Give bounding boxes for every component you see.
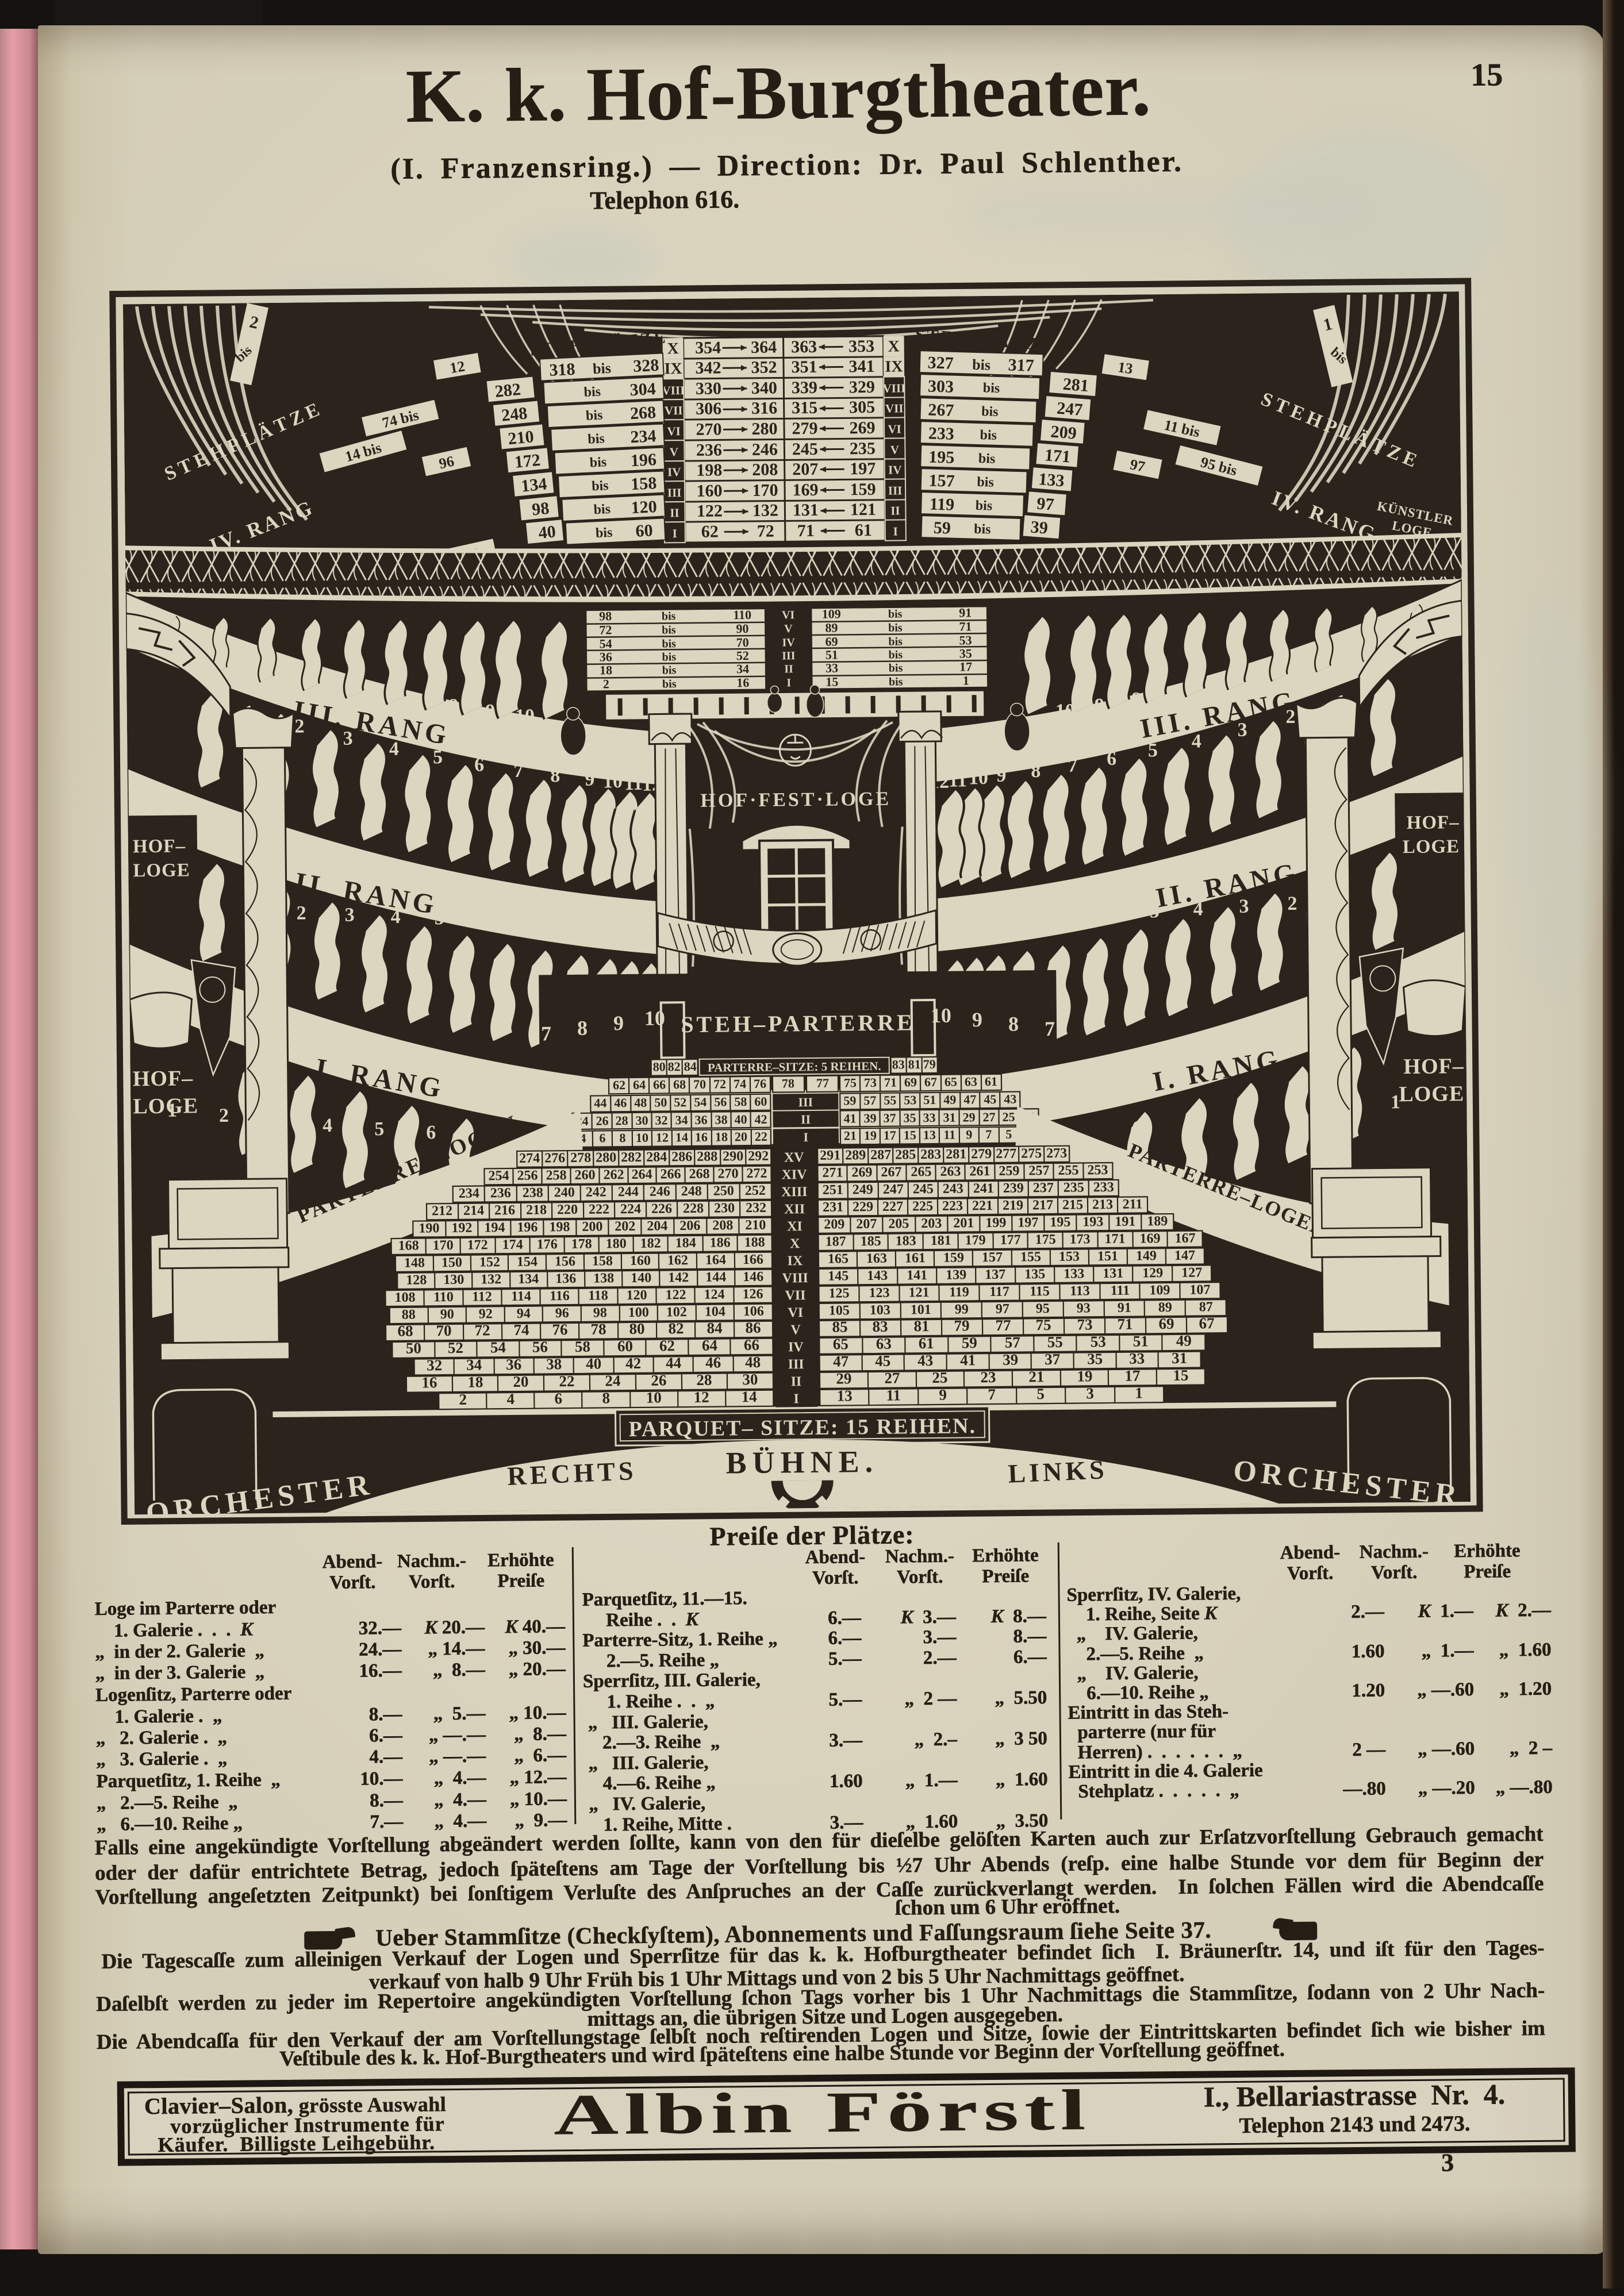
svg-text:341: 341 <box>849 357 874 376</box>
svg-text:67: 67 <box>924 1075 937 1089</box>
svg-text:160: 160 <box>630 1253 651 1268</box>
svg-text:205: 205 <box>888 1216 909 1231</box>
svg-text:IV: IV <box>667 465 681 479</box>
svg-text:13: 13 <box>923 1128 936 1142</box>
svg-text:109: 109 <box>1149 1283 1170 1298</box>
svg-text:19: 19 <box>1077 1367 1092 1384</box>
svg-text:255: 255 <box>1058 1163 1078 1178</box>
svg-text:280: 280 <box>751 420 777 439</box>
svg-text:150: 150 <box>441 1255 462 1270</box>
svg-text:142: 142 <box>668 1270 689 1285</box>
svg-text:25: 25 <box>932 1369 947 1386</box>
svg-text:330: 330 <box>696 379 721 398</box>
svg-text:173: 173 <box>1069 1232 1090 1247</box>
svg-text:9: 9 <box>966 1127 972 1141</box>
svg-text:192: 192 <box>451 1221 472 1236</box>
svg-text:17: 17 <box>959 659 972 674</box>
svg-text:6: 6 <box>370 682 380 703</box>
svg-text:231: 231 <box>823 1199 843 1214</box>
svg-text:80: 80 <box>629 1320 644 1337</box>
svg-text:196: 196 <box>630 450 657 470</box>
svg-text:6: 6 <box>1107 748 1116 770</box>
svg-text:351: 351 <box>791 357 817 376</box>
svg-text:235: 235 <box>1064 1180 1084 1195</box>
svg-text:100: 100 <box>628 1305 649 1320</box>
svg-text:52: 52 <box>736 648 749 663</box>
svg-text:20: 20 <box>513 1373 528 1390</box>
svg-text:210: 210 <box>507 427 535 448</box>
svg-text:3: 3 <box>343 728 353 749</box>
svg-text:86: 86 <box>745 1319 761 1336</box>
svg-text:283: 283 <box>920 1147 941 1162</box>
svg-text:HOF–: HOF– <box>1407 812 1460 833</box>
svg-text:120: 120 <box>631 497 658 517</box>
svg-text:162: 162 <box>667 1253 688 1268</box>
svg-text:9: 9 <box>998 906 1008 928</box>
svg-text:136: 136 <box>555 1271 576 1286</box>
svg-text:33: 33 <box>923 1110 935 1125</box>
svg-text:98: 98 <box>593 1305 607 1320</box>
svg-text:bis: bis <box>595 525 613 541</box>
svg-text:bis: bis <box>975 498 992 514</box>
svg-text:246: 246 <box>650 1184 670 1199</box>
svg-text:II: II <box>801 1112 811 1126</box>
svg-text:4: 4 <box>1235 1109 1245 1130</box>
svg-text:248: 248 <box>501 403 528 425</box>
svg-text:PARTERRE–SITZE: 5 REIHEN.: PARTERRE–SITZE: 5 REIHEN. <box>708 1059 881 1075</box>
svg-text:9: 9 <box>939 1386 947 1403</box>
svg-text:122: 122 <box>697 501 723 520</box>
svg-text:268: 268 <box>689 1167 709 1182</box>
svg-text:276: 276 <box>544 1151 565 1166</box>
svg-text:304: 304 <box>629 379 656 399</box>
svg-text:VI: VI <box>667 424 681 438</box>
svg-text:66: 66 <box>653 1077 666 1091</box>
svg-text:76: 76 <box>754 1076 766 1091</box>
svg-text:133: 133 <box>1064 1266 1084 1281</box>
svg-text:9: 9 <box>585 769 594 790</box>
svg-text:bis: bis <box>662 678 677 690</box>
svg-text:198: 198 <box>549 1220 570 1234</box>
svg-text:6: 6 <box>554 1390 562 1407</box>
svg-text:69: 69 <box>825 634 838 649</box>
svg-text:11: 11 <box>624 773 643 794</box>
svg-text:89: 89 <box>1158 1300 1172 1315</box>
svg-text:200: 200 <box>582 1219 602 1234</box>
svg-text:225: 225 <box>912 1199 933 1214</box>
svg-text:242: 242 <box>586 1184 606 1199</box>
svg-text:172: 172 <box>514 451 542 472</box>
svg-text:318: 318 <box>549 360 576 380</box>
svg-text:4: 4 <box>391 906 401 928</box>
svg-text:305: 305 <box>849 398 875 417</box>
svg-text:III: III <box>888 483 903 497</box>
svg-text:103: 103 <box>870 1303 890 1318</box>
svg-text:115: 115 <box>1030 1284 1050 1299</box>
svg-text:21: 21 <box>844 1128 857 1143</box>
svg-text:10: 10 <box>646 1389 662 1406</box>
svg-text:bis: bis <box>982 380 1000 396</box>
svg-text:8: 8 <box>602 1389 610 1406</box>
svg-text:152: 152 <box>479 1255 500 1270</box>
svg-text:316: 316 <box>751 399 777 418</box>
svg-text:137: 137 <box>985 1267 1005 1282</box>
svg-text:110: 110 <box>733 607 751 622</box>
svg-text:20: 20 <box>735 1129 747 1144</box>
svg-text:253: 253 <box>1087 1163 1108 1178</box>
svg-text:113: 113 <box>1070 1283 1090 1298</box>
svg-text:10: 10 <box>644 1006 665 1029</box>
svg-text:3: 3 <box>239 652 248 673</box>
svg-text:106: 106 <box>743 1304 764 1319</box>
svg-text:15: 15 <box>904 1128 916 1142</box>
svg-text:243: 243 <box>943 1181 963 1196</box>
svg-text:3: 3 <box>344 905 354 926</box>
svg-text:5: 5 <box>1036 1385 1045 1402</box>
svg-text:175: 175 <box>1035 1232 1055 1247</box>
svg-text:210: 210 <box>745 1218 766 1233</box>
svg-text:274: 274 <box>519 1151 540 1166</box>
svg-text:50: 50 <box>654 1095 667 1109</box>
svg-text:17: 17 <box>884 1128 896 1143</box>
svg-text:171: 171 <box>1044 445 1071 466</box>
svg-text:208: 208 <box>752 460 778 479</box>
svg-text:177: 177 <box>1000 1233 1021 1248</box>
svg-text:70: 70 <box>693 1077 706 1091</box>
svg-text:V: V <box>784 622 793 635</box>
svg-text:79: 79 <box>923 1057 936 1071</box>
svg-text:282: 282 <box>494 380 521 401</box>
svg-text:214: 214 <box>463 1203 484 1218</box>
svg-text:bis: bis <box>662 664 677 676</box>
svg-text:34: 34 <box>466 1356 482 1374</box>
svg-text:43: 43 <box>917 1352 933 1369</box>
svg-text:83: 83 <box>892 1057 905 1071</box>
svg-text:XI: XI <box>787 1219 803 1234</box>
svg-text:101: 101 <box>911 1302 931 1317</box>
svg-text:206: 206 <box>679 1218 700 1233</box>
svg-text:58: 58 <box>734 1094 747 1109</box>
svg-text:216: 216 <box>494 1203 515 1218</box>
svg-text:262: 262 <box>603 1167 624 1182</box>
svg-text:285: 285 <box>895 1147 916 1162</box>
svg-text:97: 97 <box>1036 494 1054 514</box>
svg-text:110: 110 <box>433 1290 454 1305</box>
svg-text:III: III <box>782 649 796 662</box>
svg-text:117: 117 <box>989 1284 1009 1299</box>
svg-text:105: 105 <box>829 1303 850 1318</box>
svg-text:bis: bis <box>589 455 607 470</box>
svg-text:VI: VI <box>788 1305 803 1320</box>
svg-text:44: 44 <box>666 1354 681 1371</box>
svg-text:X: X <box>888 337 900 355</box>
svg-text:227: 227 <box>882 1199 903 1214</box>
svg-text:63: 63 <box>965 1074 977 1089</box>
svg-text:38: 38 <box>715 1112 727 1126</box>
svg-text:8: 8 <box>552 910 562 931</box>
svg-text:VI: VI <box>888 422 901 436</box>
svg-text:72: 72 <box>599 622 612 637</box>
svg-text:43: 43 <box>1004 1092 1016 1106</box>
svg-text:226: 226 <box>651 1201 672 1216</box>
svg-text:18: 18 <box>715 1129 728 1144</box>
svg-text:164: 164 <box>705 1252 726 1267</box>
svg-text:102: 102 <box>666 1305 687 1320</box>
svg-text:83: 83 <box>872 1318 888 1335</box>
svg-text:RECHTS: RECHTS <box>506 1456 637 1491</box>
svg-text:40: 40 <box>734 1112 747 1126</box>
svg-text:3: 3 <box>1239 896 1249 917</box>
svg-text:37: 37 <box>1045 1351 1060 1368</box>
svg-text:180: 180 <box>606 1236 627 1251</box>
svg-text:208: 208 <box>712 1218 733 1233</box>
svg-text:244: 244 <box>618 1184 639 1199</box>
svg-text:51: 51 <box>923 1093 936 1107</box>
svg-text:259: 259 <box>999 1164 1019 1179</box>
svg-text:272: 272 <box>746 1166 767 1181</box>
svg-text:2: 2 <box>294 716 304 737</box>
svg-text:268: 268 <box>629 403 656 423</box>
svg-text:74: 74 <box>734 1076 746 1091</box>
svg-text:269: 269 <box>849 418 875 437</box>
svg-text:75: 75 <box>844 1075 857 1090</box>
svg-text:5: 5 <box>328 673 337 694</box>
svg-text:bis: bis <box>662 610 676 622</box>
svg-text:93: 93 <box>1077 1301 1091 1316</box>
svg-text:I: I <box>893 525 898 539</box>
svg-text:190: 190 <box>419 1221 439 1236</box>
svg-text:35: 35 <box>903 1110 916 1125</box>
svg-text:72: 72 <box>757 522 774 541</box>
svg-text:118: 118 <box>588 1288 608 1303</box>
svg-text:229: 229 <box>853 1199 873 1214</box>
svg-text:46: 46 <box>614 1095 627 1110</box>
svg-text:68: 68 <box>673 1077 686 1091</box>
svg-text:9: 9 <box>1095 695 1104 716</box>
svg-text:2: 2 <box>296 902 306 924</box>
svg-text:III: III <box>788 1357 804 1372</box>
svg-text:51: 51 <box>826 648 838 662</box>
svg-text:7: 7 <box>515 909 525 930</box>
svg-text:4: 4 <box>389 739 399 760</box>
svg-text:II: II <box>890 503 900 517</box>
svg-text:12: 12 <box>694 1389 709 1406</box>
svg-text:270: 270 <box>696 420 721 439</box>
svg-text:202: 202 <box>615 1219 635 1234</box>
svg-text:87: 87 <box>1199 1299 1213 1314</box>
svg-text:VII: VII <box>785 1288 805 1303</box>
svg-text:HOF–: HOF– <box>133 1066 194 1091</box>
svg-text:279: 279 <box>971 1147 992 1162</box>
svg-text:21: 21 <box>1028 1368 1044 1385</box>
svg-text:90: 90 <box>440 1307 454 1322</box>
svg-text:119: 119 <box>949 1284 969 1299</box>
svg-text:108: 108 <box>394 1290 415 1305</box>
svg-text:1: 1 <box>1135 1384 1143 1401</box>
svg-text:bis: bis <box>980 428 997 443</box>
svg-text:39: 39 <box>1003 1351 1018 1368</box>
svg-text:290: 290 <box>723 1149 743 1164</box>
svg-text:17: 17 <box>1124 1367 1140 1384</box>
svg-text:54: 54 <box>694 1095 707 1109</box>
svg-text:bis: bis <box>972 356 991 374</box>
svg-text:IX: IX <box>787 1253 803 1268</box>
svg-text:82: 82 <box>668 1320 684 1337</box>
svg-text:8: 8 <box>448 695 458 717</box>
svg-text:128: 128 <box>406 1272 427 1287</box>
svg-text:123: 123 <box>869 1286 889 1301</box>
svg-text:129: 129 <box>1142 1266 1163 1280</box>
svg-text:317: 317 <box>1008 356 1034 375</box>
svg-text:49: 49 <box>1176 1332 1192 1349</box>
svg-text:64: 64 <box>633 1078 646 1092</box>
svg-text:273: 273 <box>1046 1146 1067 1161</box>
svg-text:251: 251 <box>823 1182 843 1197</box>
svg-text:61: 61 <box>919 1334 934 1352</box>
svg-text:235: 235 <box>850 439 876 458</box>
svg-text:bis: bis <box>592 360 611 377</box>
svg-text:18: 18 <box>600 663 612 677</box>
svg-text:30: 30 <box>742 1371 758 1388</box>
svg-text:12: 12 <box>448 357 466 376</box>
svg-text:239: 239 <box>1003 1180 1024 1195</box>
svg-text:64: 64 <box>702 1337 717 1354</box>
svg-text:158: 158 <box>631 474 658 494</box>
svg-text:LOGE: LOGE <box>133 860 190 881</box>
svg-text:8: 8 <box>1032 905 1042 926</box>
svg-text:31: 31 <box>1172 1349 1187 1367</box>
svg-text:165: 165 <box>828 1251 849 1266</box>
svg-text:241: 241 <box>973 1181 994 1196</box>
svg-text:78: 78 <box>590 1320 606 1337</box>
svg-text:92: 92 <box>479 1306 493 1321</box>
svg-text:III: III <box>667 486 682 499</box>
svg-text:30: 30 <box>635 1113 648 1128</box>
svg-text:340: 340 <box>751 379 777 398</box>
svg-text:282: 282 <box>621 1150 642 1165</box>
svg-text:71: 71 <box>884 1075 897 1090</box>
svg-text:72: 72 <box>713 1076 726 1091</box>
svg-text:41: 41 <box>960 1351 976 1368</box>
svg-text:148: 148 <box>404 1255 425 1270</box>
svg-text:84: 84 <box>707 1320 722 1337</box>
svg-text:114: 114 <box>511 1289 531 1304</box>
svg-text:42: 42 <box>754 1112 767 1126</box>
svg-text:201: 201 <box>953 1216 974 1230</box>
svg-text:8: 8 <box>550 765 560 786</box>
svg-text:119: 119 <box>929 495 954 514</box>
svg-text:207: 207 <box>792 460 818 479</box>
svg-text:193: 193 <box>1082 1214 1103 1229</box>
svg-text:124: 124 <box>704 1287 724 1302</box>
svg-text:25: 25 <box>1002 1110 1015 1124</box>
svg-text:38: 38 <box>546 1355 562 1372</box>
svg-text:66: 66 <box>744 1336 759 1353</box>
svg-text:69: 69 <box>1158 1315 1174 1332</box>
svg-text:bis: bis <box>583 384 601 400</box>
svg-text:3: 3 <box>1086 1384 1094 1402</box>
svg-text:63: 63 <box>876 1335 892 1352</box>
svg-text:171: 171 <box>1104 1232 1125 1247</box>
svg-text:51: 51 <box>1133 1332 1149 1349</box>
svg-text:7: 7 <box>410 690 420 711</box>
svg-text:220: 220 <box>557 1202 578 1217</box>
svg-text:26: 26 <box>651 1371 666 1389</box>
svg-text:203: 203 <box>921 1216 942 1231</box>
svg-text:130: 130 <box>443 1272 464 1287</box>
svg-text:2: 2 <box>219 1105 229 1126</box>
svg-text:153: 153 <box>1059 1249 1080 1264</box>
svg-text:91: 91 <box>959 605 972 620</box>
svg-text:364: 364 <box>751 338 777 357</box>
svg-text:59: 59 <box>962 1334 977 1351</box>
svg-text:47: 47 <box>963 1092 976 1106</box>
svg-text:70: 70 <box>436 1322 451 1339</box>
svg-text:13: 13 <box>837 1387 853 1404</box>
svg-text:36: 36 <box>600 649 612 664</box>
svg-text:271: 271 <box>822 1165 843 1180</box>
svg-text:112: 112 <box>472 1289 492 1304</box>
svg-text:LINKS: LINKS <box>1007 1455 1108 1489</box>
svg-text:bis: bis <box>888 621 903 634</box>
svg-text:247: 247 <box>1056 399 1083 420</box>
svg-text:167: 167 <box>1174 1231 1195 1246</box>
svg-text:bis: bis <box>662 624 676 636</box>
svg-text:18: 18 <box>467 1374 483 1391</box>
svg-text:14: 14 <box>742 1388 757 1405</box>
svg-text:LOGE: LOGE <box>1399 1082 1464 1106</box>
svg-text:15: 15 <box>826 675 838 689</box>
svg-text:287: 287 <box>870 1148 891 1163</box>
svg-text:149: 149 <box>1136 1248 1157 1263</box>
svg-text:52: 52 <box>674 1095 686 1109</box>
svg-text:bis: bis <box>978 451 996 467</box>
svg-text:178: 178 <box>571 1237 592 1252</box>
svg-text:71: 71 <box>797 521 815 540</box>
svg-text:125: 125 <box>828 1286 849 1301</box>
svg-text:10: 10 <box>603 771 623 792</box>
svg-text:233: 233 <box>928 424 954 444</box>
svg-text:73: 73 <box>1077 1316 1092 1333</box>
svg-text:8: 8 <box>1131 689 1141 710</box>
svg-text:147: 147 <box>1174 1248 1195 1263</box>
svg-text:169: 169 <box>792 480 818 499</box>
svg-text:8: 8 <box>619 1130 625 1145</box>
svg-text:245: 245 <box>792 440 818 459</box>
svg-text:bis: bis <box>888 635 903 648</box>
svg-text:288: 288 <box>697 1149 717 1164</box>
svg-text:5: 5 <box>433 747 443 768</box>
svg-text:16: 16 <box>421 1374 437 1391</box>
svg-text:157: 157 <box>928 471 955 491</box>
svg-text:7: 7 <box>1068 755 1077 776</box>
svg-text:44: 44 <box>594 1095 606 1110</box>
svg-text:126: 126 <box>742 1287 763 1302</box>
svg-text:172: 172 <box>467 1237 488 1252</box>
svg-text:52: 52 <box>448 1339 463 1356</box>
svg-text:204: 204 <box>647 1218 667 1233</box>
svg-text:48: 48 <box>634 1095 647 1110</box>
svg-text:32: 32 <box>427 1356 442 1374</box>
svg-text:233: 233 <box>1093 1180 1114 1195</box>
svg-text:11: 11 <box>950 907 968 929</box>
svg-text:59: 59 <box>843 1093 856 1107</box>
svg-text:VIII: VIII <box>882 381 905 395</box>
svg-text:2: 2 <box>1287 893 1297 914</box>
svg-text:236: 236 <box>696 440 722 459</box>
svg-text:II: II <box>670 506 679 520</box>
svg-text:7: 7 <box>1045 1017 1055 1040</box>
